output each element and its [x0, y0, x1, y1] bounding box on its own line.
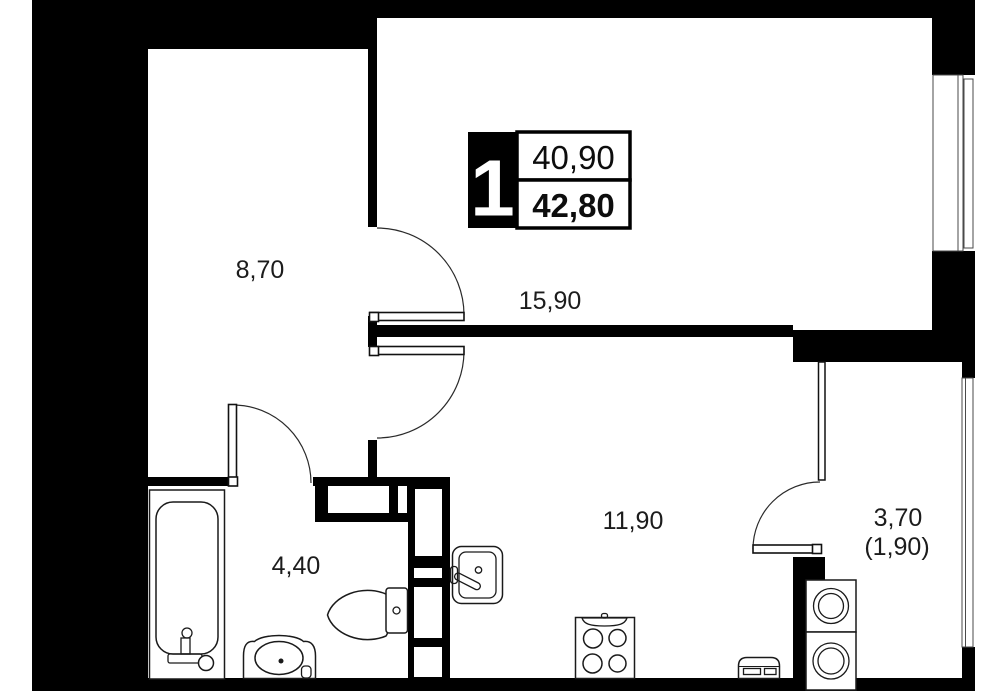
window-opening [962, 378, 973, 647]
stove-burner [583, 654, 602, 673]
door-leaf [753, 545, 821, 553]
wall-balcony-pier [793, 557, 825, 580]
badge-rooms-count: 1 [470, 144, 515, 233]
stove-burner [609, 655, 626, 672]
wall-main-horizontal [368, 325, 793, 337]
shaft-opening [328, 486, 389, 513]
label-kitchen-area: 11,90 [603, 507, 664, 535]
stove [576, 614, 635, 679]
door-leaf [370, 313, 464, 321]
label-balcony-area-reduced: (1,90) [864, 533, 929, 561]
kitchen-sink [451, 547, 503, 604]
living-room-window [933, 75, 973, 251]
floor-plan-svg: 1 40,90 42,80 8,70 15,90 4,40 11,90 3,70… [0, 0, 1006, 700]
wall-bathroom-top-right [313, 477, 450, 486]
shaft-frame-left [315, 477, 328, 522]
floor-plan-screenshot: 1 40,90 42,80 8,70 15,90 4,40 11,90 3,70… [0, 0, 1006, 700]
window-opening [933, 75, 958, 251]
label-balcony-area: 3,70 [874, 504, 923, 532]
wall-pier-lower [368, 337, 377, 347]
balcony-window [962, 378, 973, 647]
window-sill [964, 79, 973, 248]
wall-balcony-pier-lower [793, 580, 806, 678]
vanity-sink [244, 636, 316, 679]
counter-appliance [739, 658, 780, 679]
wall-left-mass [32, 0, 148, 691]
door-leaf [229, 405, 237, 486]
shaft-opening [398, 486, 407, 513]
vanity-basin [255, 642, 303, 675]
stove-burner [584, 629, 603, 648]
badge-area-living: 40,90 [532, 139, 615, 176]
washer-stack [806, 580, 856, 690]
stove-burner [609, 630, 626, 647]
wall-balcony-right-top [962, 362, 975, 378]
door-hinge [370, 313, 379, 322]
shaft-opening [414, 647, 442, 677]
wall-right-upper [932, 18, 975, 75]
vanity-drain [279, 659, 284, 664]
wall-bathroom-top-left [148, 477, 237, 486]
wall-main-thick [793, 330, 975, 362]
shaft-divider [389, 486, 398, 513]
door-hinge [813, 545, 822, 554]
door-hinge [229, 477, 238, 486]
area-badge: 1 40,90 42,80 [468, 132, 630, 233]
wall-hall-living [368, 18, 377, 227]
shaft-opening [415, 489, 442, 556]
label-bathroom-area: 4,40 [272, 552, 321, 580]
bathtub-basin [156, 502, 218, 654]
label-hallway-area: 8,70 [236, 256, 285, 284]
bathtub-faucet-knob [199, 656, 214, 671]
balcony-partition [819, 362, 826, 480]
wall-right-mid [932, 251, 975, 330]
wall-balcony-right-bottom [962, 647, 975, 678]
window-frame [958, 75, 963, 251]
door-leaf [370, 347, 464, 355]
wall-top-living [377, 0, 975, 18]
shaft-frame-bottom [328, 513, 419, 522]
door-hinge [370, 347, 379, 356]
toilet-tank [386, 588, 408, 633]
wall-top-hallway [148, 0, 377, 49]
label-living-area: 15,90 [519, 287, 582, 315]
bathtub [150, 490, 225, 679]
shaft-opening [414, 587, 442, 638]
badge-area-total: 42,80 [532, 187, 615, 224]
shaft-opening [414, 568, 442, 578]
